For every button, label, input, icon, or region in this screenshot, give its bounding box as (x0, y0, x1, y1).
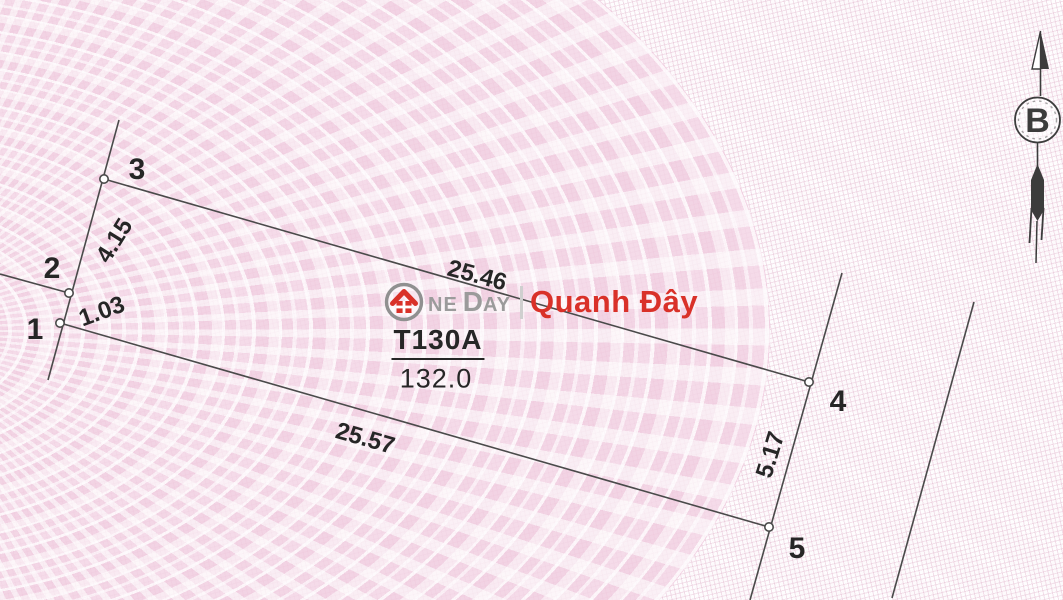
parcel-area: 132.0 (400, 364, 473, 395)
north-arrow: B (1000, 24, 1063, 274)
logo-ay-text: AY (483, 294, 511, 317)
vertex-label-1: 1 (27, 315, 44, 345)
dimension-label-4.15: 4.15 (92, 215, 137, 267)
north-arrowhead-left (1032, 31, 1041, 69)
vertex-label-2: 2 (44, 254, 61, 284)
watermark-logo: NE D AY Quanh Đây (382, 279, 698, 325)
vertex-label-5: 5 (789, 534, 806, 564)
compass-north-letter: B (1025, 102, 1050, 140)
vertex-label-4: 4 (830, 387, 847, 417)
compass-needle-tail (1031, 164, 1044, 221)
tail-line (1036, 221, 1037, 263)
parcel-id: T130A (391, 324, 484, 360)
house-icon (382, 279, 426, 325)
dimension-label-25.57: 25.57 (333, 419, 397, 459)
logo-d-text: D (463, 286, 483, 318)
tail-prong-left (1030, 208, 1032, 243)
dimension-label-1.03: 1.03 (76, 293, 128, 332)
cadastral-drawing: 123454.151.0325.4625.575.17 T130A 132.0 … (0, 0, 1063, 600)
dimension-label-5.17: 5.17 (753, 429, 790, 481)
logo-ne-text: NE (428, 294, 458, 317)
north-arrowhead-right (1041, 31, 1050, 69)
logo-one-day: NE D AY (426, 286, 511, 318)
logo-divider (520, 286, 523, 319)
logo-quanh-day-text: Quanh Đây (530, 284, 698, 320)
vertex-label-3: 3 (129, 155, 146, 185)
